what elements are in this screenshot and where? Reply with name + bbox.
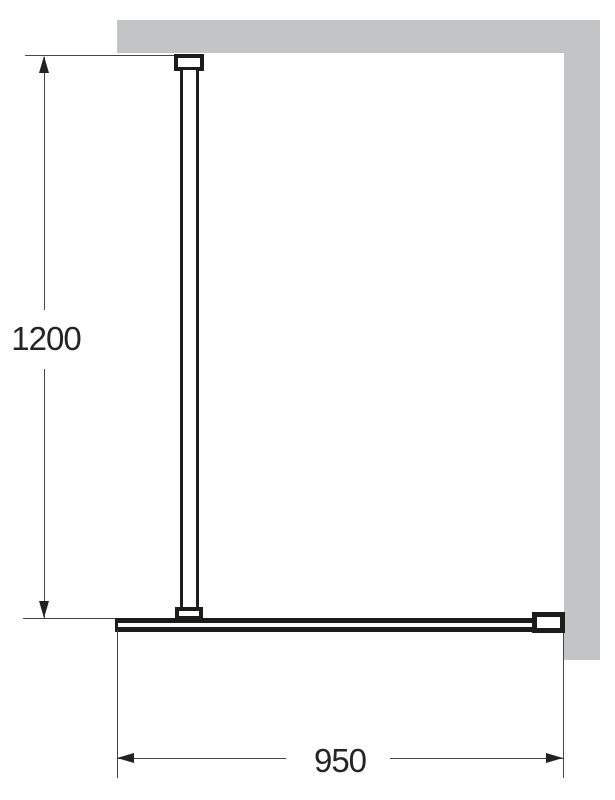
wall-top	[117, 20, 600, 53]
wall-right	[564, 20, 600, 660]
height-dimension-label: 1200	[6, 322, 86, 356]
glass-panel	[115, 618, 532, 632]
arrow-left-icon	[117, 753, 134, 763]
extension-line-right	[563, 633, 564, 778]
dimension-line-horizontal-right	[390, 758, 563, 759]
arrow-up-icon	[39, 56, 49, 73]
support-bar	[180, 70, 199, 608]
wall-mount-bracket	[532, 612, 565, 633]
dimension-line-horizontal-left	[118, 758, 286, 759]
extension-line-bottom	[23, 618, 115, 619]
arrow-down-icon	[39, 601, 49, 618]
shower-screen-installation-diagram: 1200 950	[0, 0, 615, 800]
width-dimension-label: 950	[298, 744, 382, 778]
arrow-right-icon	[546, 753, 563, 763]
dimension-line-vertical-lower	[44, 369, 45, 618]
ceiling-bracket	[174, 54, 204, 71]
dimension-line-vertical-upper	[44, 57, 45, 310]
